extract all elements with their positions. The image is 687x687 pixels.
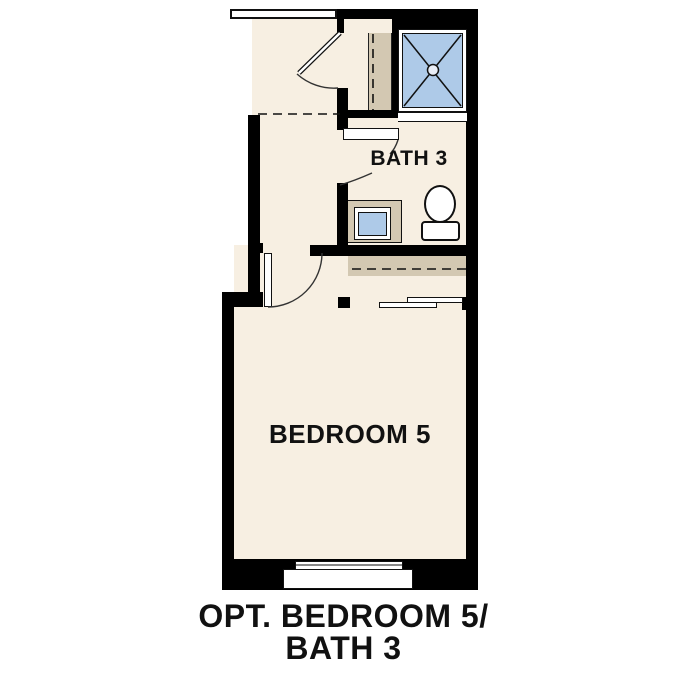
bedroom-door-leaf bbox=[264, 253, 272, 307]
room-label-bath: BATH 3 bbox=[363, 147, 455, 171]
closet-shelf bbox=[348, 256, 466, 276]
caption-line-2: BATH 3 bbox=[0, 630, 687, 667]
wall bbox=[248, 115, 260, 245]
shower-curb bbox=[398, 112, 467, 122]
wall bbox=[248, 253, 260, 292]
bath-door-leaf bbox=[343, 128, 399, 140]
wall bbox=[248, 243, 263, 253]
wall bbox=[338, 297, 350, 308]
wall-panel-strip bbox=[368, 33, 392, 112]
bypass-door-left bbox=[379, 302, 437, 308]
window-sill bbox=[283, 569, 413, 589]
sink-basin bbox=[358, 212, 387, 236]
wall bbox=[337, 88, 348, 130]
wall bbox=[337, 19, 344, 33]
floor-upper-room bbox=[252, 18, 337, 252]
room-label-bedroom: BEDROOM 5 bbox=[244, 419, 456, 450]
wall bbox=[222, 292, 263, 307]
toilet-tank bbox=[421, 221, 460, 241]
toilet-bowl bbox=[424, 185, 456, 223]
wall bbox=[222, 307, 234, 590]
shower-floor bbox=[402, 33, 463, 108]
wall bbox=[310, 245, 466, 256]
floor-plan: BATH 3 BEDROOM 5 OPT. BEDROOM 5/ BATH 3 bbox=[0, 0, 687, 687]
window bbox=[230, 9, 337, 19]
wall bbox=[462, 297, 478, 310]
